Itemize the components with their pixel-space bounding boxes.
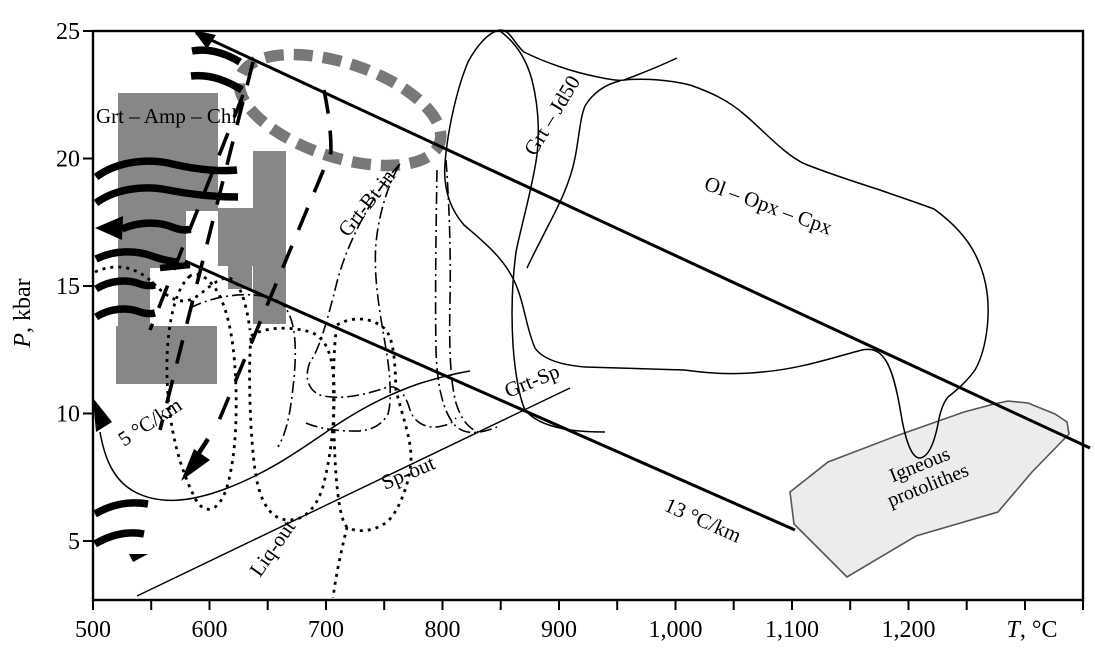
svg-text:500: 500 [75, 617, 111, 643]
svg-text:P, kbar: P, kbar [10, 278, 36, 348]
svg-text:T, °C: T, °C [1007, 617, 1058, 643]
svg-text:20: 20 [56, 147, 80, 173]
svg-text:1,200: 1,200 [882, 617, 936, 643]
svg-text:1,000: 1,000 [649, 617, 703, 643]
svg-text:800: 800 [425, 617, 461, 643]
svg-text:15: 15 [56, 274, 80, 300]
svg-text:10: 10 [56, 402, 80, 428]
svg-text:5: 5 [68, 529, 80, 555]
svg-text:Grt – Amp – Chl: Grt – Amp – Chl [96, 104, 237, 128]
svg-text:900: 900 [541, 617, 577, 643]
svg-text:25: 25 [56, 19, 80, 45]
svg-text:600: 600 [192, 617, 228, 643]
svg-text:700: 700 [308, 617, 344, 643]
svg-text:1,100: 1,100 [765, 617, 819, 643]
